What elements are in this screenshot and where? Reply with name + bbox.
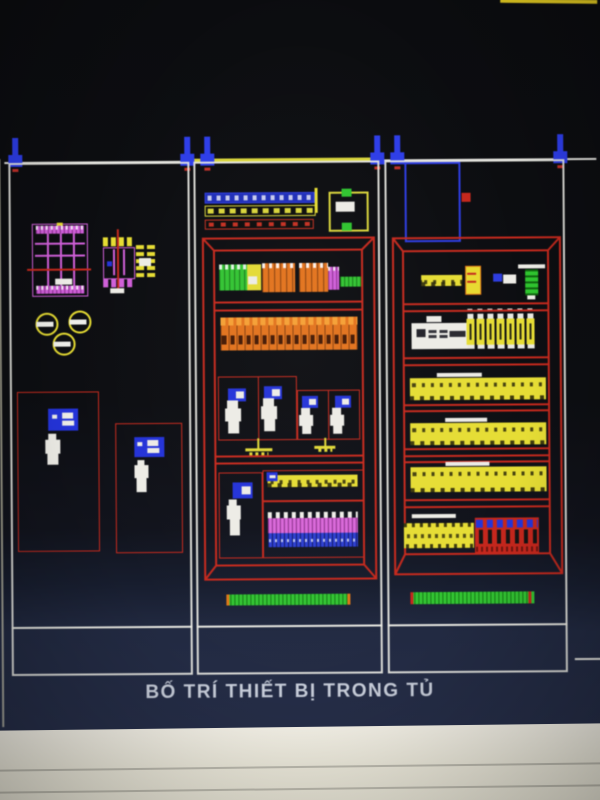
mccb-pole-line — [47, 227, 49, 293]
contactor-shape — [227, 505, 241, 519]
busbar-label — [267, 472, 278, 481]
mccb-elevation — [32, 223, 89, 296]
fuse-unit — [506, 309, 514, 349]
controller-slot — [440, 330, 448, 333]
plinth-bar-cap — [347, 594, 350, 605]
bracket-stem — [184, 137, 190, 155]
mccb-pole-line — [73, 227, 75, 293]
screen-photo: BỐ TRÍ THIẾT BỊ TRONG TỦ — [0, 0, 600, 800]
mccb-label — [55, 279, 72, 285]
terminal-strip-row — [220, 317, 357, 351]
earth-symbol-icon — [318, 449, 332, 452]
laptop-bezel — [0, 723, 600, 800]
breaker-device — [134, 465, 148, 478]
busbar-row — [410, 377, 546, 400]
aux-block — [136, 245, 155, 280]
label-glyph — [62, 421, 74, 426]
lamp-slot — [69, 319, 86, 324]
busbar-row-label — [437, 373, 482, 377]
contactor-line — [113, 249, 115, 275]
contactor-line — [123, 249, 125, 275]
plinth-bar-cap — [410, 592, 413, 604]
pilot-lamp-icon — [53, 333, 76, 356]
fuse-unit — [496, 309, 504, 349]
contactor-shape — [227, 400, 238, 408]
fuse-unit — [486, 309, 494, 349]
breaker-device — [45, 440, 60, 454]
contactor-shape — [225, 408, 241, 421]
bezel-groove — [0, 784, 600, 794]
contactor-shape — [302, 426, 311, 434]
door-device — [329, 192, 369, 232]
fuse-feet — [497, 345, 504, 349]
contactor-shape — [264, 419, 275, 431]
mccb-terminals-top — [36, 226, 84, 234]
sensor-foot — [527, 295, 535, 299]
contactor-cell — [328, 390, 360, 440]
terminal-strip-yellow — [404, 523, 474, 548]
din-rail-blue — [205, 192, 315, 204]
controller-body — [411, 323, 467, 349]
contactor-cell — [218, 376, 259, 440]
contactor-mark-blue — [107, 261, 112, 266]
indicator-white — [503, 274, 516, 283]
terminal-group-orange — [262, 263, 295, 292]
aux-center — [139, 258, 151, 266]
frame-divider — [264, 500, 364, 502]
capacitor-band — [467, 281, 476, 283]
terminal-bank-pink — [268, 518, 358, 534]
fuse-feet — [487, 345, 494, 349]
fuse-feet — [527, 344, 534, 348]
terminal-group-orange — [299, 263, 328, 292]
controller-slot — [429, 335, 437, 338]
busbar-yellow — [268, 475, 358, 488]
pilot-lamp-icon — [35, 313, 58, 336]
contactor-elevation — [103, 229, 135, 295]
bracket-stem — [204, 137, 210, 155]
marker-red — [462, 193, 471, 202]
rail-end-bracket — [315, 188, 318, 213]
controller-tab — [426, 316, 441, 322]
label-glyph — [52, 415, 57, 419]
plinth-bar-green — [226, 594, 350, 606]
controller-slot — [429, 330, 437, 333]
fuse-slot — [509, 324, 512, 340]
terminal-bank-blue — [268, 533, 358, 548]
cell-label — [233, 482, 253, 498]
relay-window — [248, 276, 257, 284]
relay-yellow — [247, 264, 261, 290]
contactor-shape — [230, 519, 240, 535]
busbar-row — [410, 466, 546, 492]
label-glyph — [342, 399, 349, 405]
fuse-slot — [519, 323, 522, 339]
lamp-slot — [54, 342, 71, 347]
contactor-shape — [299, 415, 313, 426]
label-glyph — [270, 475, 276, 478]
right-panel-plinth — [388, 623, 568, 673]
door-device-label — [336, 202, 355, 212]
fuse-feet — [517, 344, 524, 348]
left-panel-plinth — [12, 626, 193, 676]
contactor-shape — [263, 398, 274, 406]
busbar-stub-yellow — [421, 275, 462, 286]
bracket-stem — [557, 134, 563, 152]
fuse-slot — [469, 324, 472, 340]
label-glyph — [309, 399, 316, 405]
contactor-shape — [228, 421, 239, 433]
fuse-feet — [467, 345, 474, 349]
contactor-cell — [258, 376, 297, 440]
indicator-blue — [493, 274, 502, 282]
left-edge-line — [0, 159, 4, 727]
fuse-bank — [466, 308, 536, 350]
contactor-cell — [219, 472, 264, 558]
label-glyph — [242, 486, 251, 494]
contactor-shape — [261, 406, 277, 419]
earth-symbol-icon — [245, 448, 272, 451]
bracket-stem — [374, 135, 380, 153]
fuse-slot — [529, 323, 532, 339]
sheet-border-line — [500, 0, 597, 4]
label-glyph — [147, 440, 158, 446]
busbar-row-label — [445, 462, 489, 466]
lamp-slot — [36, 322, 53, 327]
sheet-line-fragment — [575, 658, 600, 660]
bracket-stem — [394, 135, 400, 153]
terminal-blocks-red-blue — [475, 517, 539, 552]
din-rail-red — [205, 219, 314, 230]
din-rail-yellow — [205, 205, 316, 217]
cad-drawing: BỐ TRÍ THIẾT BỊ TRONG TỦ — [0, 0, 600, 800]
label-glyph — [272, 389, 280, 396]
fuse-feet — [477, 345, 484, 349]
fuse-slot — [479, 324, 482, 340]
door-device-terminal — [342, 189, 352, 197]
fuse-unit — [526, 308, 534, 348]
breaker-device — [47, 454, 58, 465]
cell-label — [335, 396, 351, 408]
drawing-title: BỐ TRÍ THIẾT BỊ TRONG TỦ — [98, 680, 482, 707]
breaker-bay-small — [115, 423, 183, 553]
busbar-row-label — [445, 418, 487, 422]
contactor-shape — [330, 415, 344, 426]
terminal-magenta — [328, 267, 339, 290]
controller-groove — [450, 331, 466, 337]
sensor-top-bar — [518, 264, 545, 268]
breaker-label-plate — [48, 409, 78, 431]
label-glyph — [236, 391, 244, 398]
bezel-groove — [0, 762, 600, 772]
door-device-terminal — [342, 223, 352, 231]
sensor-green-body — [525, 269, 538, 295]
busbar-row — [410, 422, 546, 445]
plinth-bar-tick — [528, 591, 531, 603]
fuse-feet — [507, 345, 514, 349]
pilot-lamp-icon — [68, 310, 91, 333]
contactor-cell — [297, 390, 329, 440]
label-glyph — [147, 448, 159, 453]
middle-panel-plinth — [197, 624, 383, 674]
breaker-device — [137, 478, 147, 492]
label-glyph — [62, 413, 73, 419]
capacitor-band — [467, 273, 476, 275]
mccb-terminals-bottom — [36, 286, 84, 294]
capacitor-icon — [465, 266, 481, 295]
contactor-shape — [332, 408, 341, 415]
breaker-bay-large — [17, 391, 100, 552]
breaker-label-plate — [134, 437, 164, 457]
fuse-unit — [516, 308, 524, 348]
contactor-shape — [301, 408, 310, 415]
contactor-shape — [333, 426, 342, 434]
bracket-stem — [12, 138, 18, 156]
busbar-terminal-frame — [262, 470, 365, 559]
terminal-row-label — [412, 514, 456, 518]
terminal-group-green — [219, 264, 247, 290]
door-frame-blue — [404, 162, 461, 242]
label-glyph — [137, 442, 142, 446]
plinth-bar-green — [410, 591, 534, 604]
contactor-label — [110, 288, 124, 293]
mccb-crossbar — [35, 254, 85, 256]
fuse-unit — [466, 309, 474, 349]
fuse-slot — [499, 324, 502, 340]
fuse-unit — [476, 309, 484, 349]
neutral-bar-green — [340, 277, 361, 287]
mccb-tick — [57, 223, 63, 226]
mccb-crossbar — [35, 242, 85, 244]
fuse-slot — [489, 324, 492, 340]
cell-label — [302, 396, 318, 408]
controller-port — [417, 329, 426, 337]
controller-slot — [440, 335, 448, 338]
plinth-bar-cap — [226, 594, 229, 605]
